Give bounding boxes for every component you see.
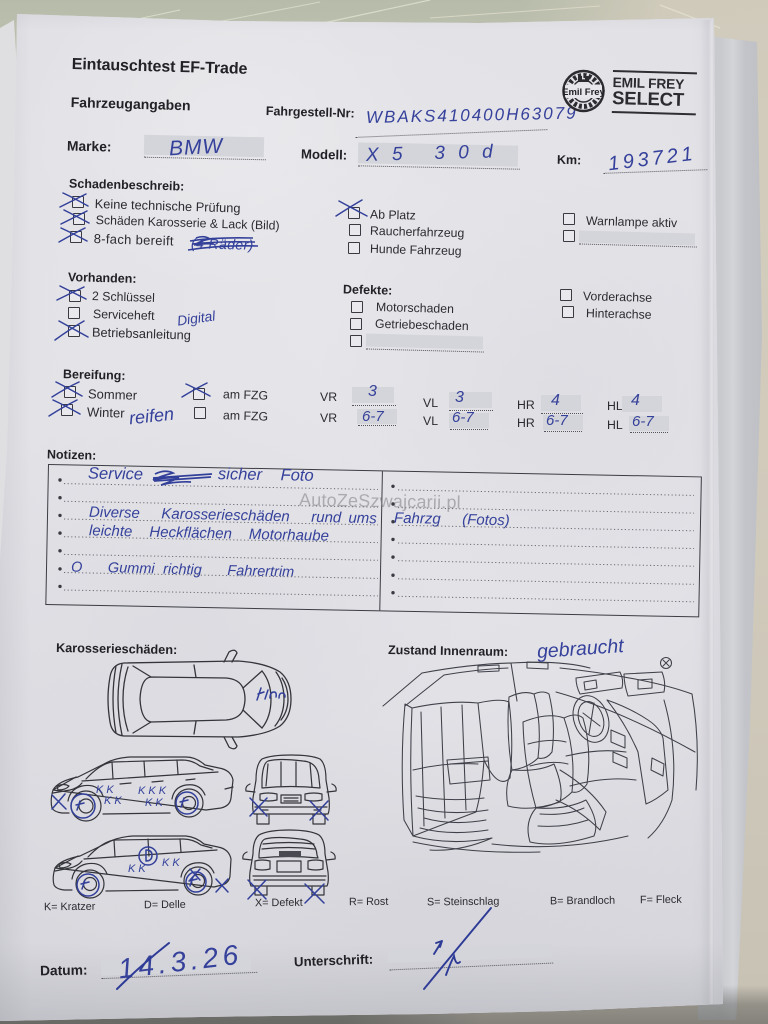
svg-text:K K: K K [145, 797, 163, 809]
svg-text:K K: K K [128, 863, 146, 875]
svg-text:K K K: K K K [138, 785, 167, 797]
svg-text:K K: K K [104, 795, 122, 807]
svg-text:K K: K K [162, 857, 180, 869]
